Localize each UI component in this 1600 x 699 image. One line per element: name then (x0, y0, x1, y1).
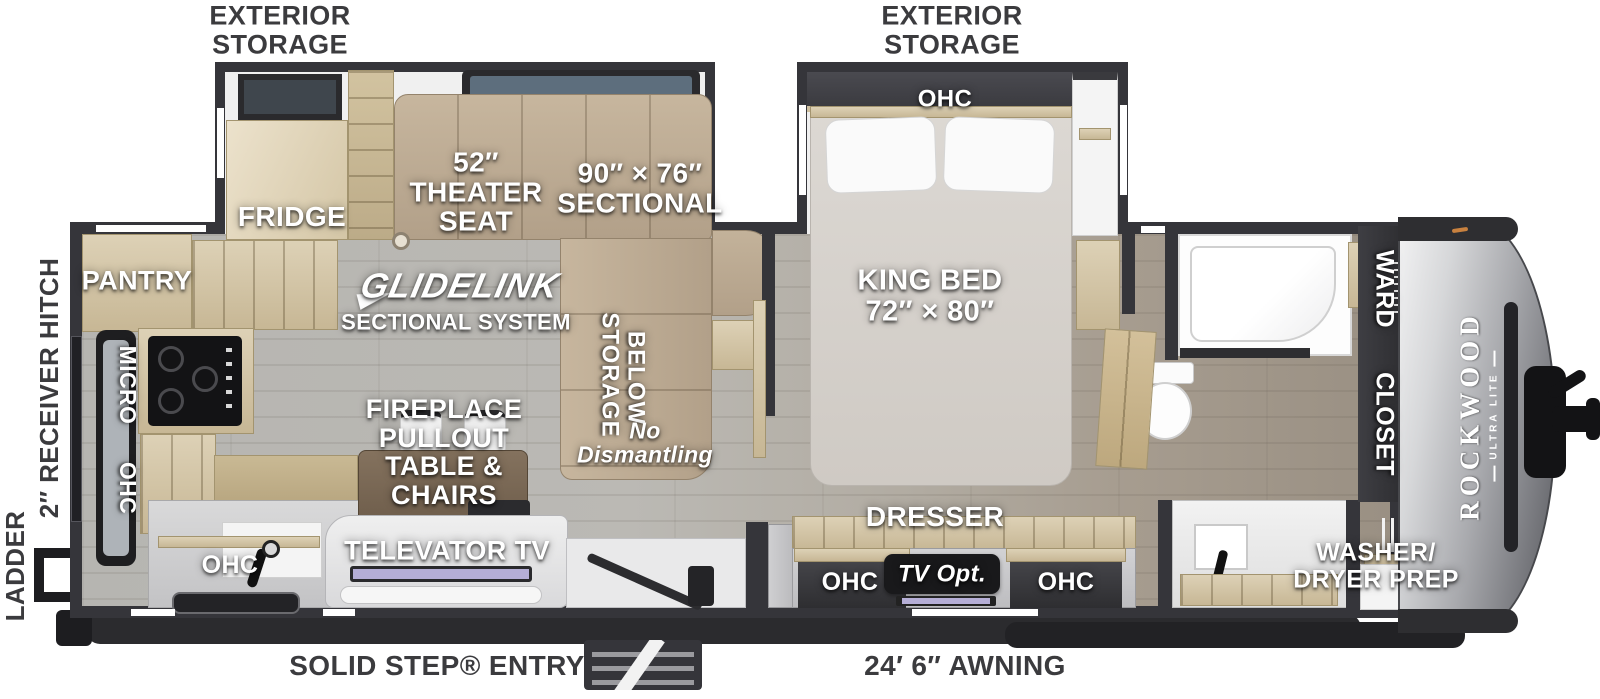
shower-wall-left (1165, 234, 1178, 360)
pantry-label: PANTRY (82, 267, 192, 296)
slide-window-slit (217, 108, 224, 178)
kitchen-sink (172, 592, 300, 614)
storage-below-label-2: BELOW (623, 331, 648, 425)
bathroom-door (1095, 328, 1156, 469)
exterior-storage-line: STORAGE (209, 30, 350, 59)
bedroom-wardrobe (1072, 72, 1118, 236)
cap-bottom-molding (1398, 609, 1518, 633)
brand-dash (1493, 350, 1495, 366)
entry-steps (584, 640, 702, 690)
theater-line: SEAT (410, 207, 543, 237)
floorplan-canvas: EXTERIOR STORAGE EXTERIOR STORAGE LADDER… (0, 0, 1600, 699)
receiver-hitch-label: 2″ RECEIVER HITCH (36, 258, 64, 519)
fridge-label: FRIDGE (238, 202, 346, 232)
exterior-storage-right-label: EXTERIOR STORAGE (881, 1, 1022, 58)
tv-base (340, 586, 542, 604)
sectional-label: 90″ × 76″ SECTIONAL (557, 158, 722, 217)
slide-window-slit (799, 105, 806, 195)
door-side-chair (688, 566, 714, 606)
fireplace-line: CHAIRS (366, 481, 523, 510)
fireplace-pullout-label: FIREPLACE PULLOUT TABLE & CHAIRS (366, 395, 523, 509)
exterior-storage-line: STORAGE (881, 30, 1022, 59)
fireplace-line: FIREPLACE (366, 395, 523, 424)
window-slit (323, 609, 355, 616)
slide-tall-cabinet (348, 70, 394, 240)
no-dismantling-line: No (577, 419, 713, 443)
dresser-ohc-right-shelf (1006, 548, 1126, 562)
ohc-sink-label: OHC (202, 552, 259, 579)
cap-window-strip (1504, 302, 1518, 552)
bedroom-wall-bottom (746, 522, 768, 618)
cooktop (148, 336, 242, 426)
shower-glass (1180, 348, 1310, 358)
bath-wall-left (1122, 234, 1135, 314)
window-slit (96, 225, 206, 232)
dresser-label: DRESSER (866, 502, 1004, 532)
washer-dryer-line: DRYER PREP (1293, 566, 1459, 593)
brand-ultra-lite-text: ULTRA LITE (1489, 372, 1500, 459)
washer-dryer-prep-label: WASHER/ DRYER PREP (1293, 540, 1459, 593)
bedroom-sliding-door (753, 300, 766, 458)
cupholder (392, 232, 410, 250)
window-slit (1141, 226, 1165, 233)
exterior-storage-line: EXTERIOR (209, 1, 350, 30)
ohc-bed-label: OHC (918, 86, 973, 111)
rear-window (71, 336, 82, 522)
sectional-line: SECTIONAL (557, 188, 722, 218)
glidelink-logo: GLIDELINK (357, 267, 562, 304)
theater-seat-label: 52″ THEATER SEAT (410, 147, 543, 236)
frame-rail-front (1005, 622, 1465, 648)
fireplace-line: TABLE & (366, 452, 523, 481)
slide-window-slit (1120, 105, 1127, 195)
brand-ultra-lite: ULTRA LITE (1489, 350, 1500, 481)
ohc-dresser-left-label: OHC (822, 569, 879, 596)
televator-tv-label: TELEVATOR TV (344, 537, 550, 566)
sectional-system-label: SECTIONAL SYSTEM (341, 310, 571, 333)
ladder-label: LADDER (2, 511, 30, 622)
brand-dash (1493, 466, 1495, 482)
shower-pan (1178, 234, 1352, 356)
micro-label: MICRO (116, 346, 140, 425)
brand-rockwood: ROCKWOOD (1456, 311, 1485, 521)
tv-opt-label: TV Opt. (898, 561, 986, 586)
fridge-window (238, 74, 342, 120)
entry-landing (566, 538, 746, 608)
ohc-shelf-plank (158, 536, 320, 548)
king-bed-line: KING BED (858, 265, 1003, 296)
exterior-storage-line: EXTERIOR (881, 1, 1022, 30)
ohc-kitchen-wall-label: OHC (116, 462, 140, 514)
ohc-dresser-right-label: OHC (1038, 569, 1095, 596)
theater-line: 52″ (410, 147, 543, 177)
closet-label: CLOSET (1371, 372, 1398, 476)
bed-pillow (943, 116, 1056, 194)
awning-label: 24′ 6″ AWNING (864, 651, 1066, 681)
tv-screen (350, 566, 532, 582)
exterior-storage-left-label: EXTERIOR STORAGE (209, 1, 350, 58)
washer-dryer-line: WASHER/ (1293, 540, 1459, 567)
theater-line: THEATER (410, 177, 543, 207)
ward-label: WARD (1371, 250, 1398, 328)
no-dismantling-label: No Dismantling (577, 419, 713, 468)
solid-step-entry-label: SOLID STEP® ENTRY (289, 651, 585, 681)
vanity-wall-left (1158, 500, 1172, 610)
king-bed-label: KING BED 72″ × 80″ (858, 265, 1003, 326)
hitch-coupler (1586, 398, 1600, 440)
step-tread (592, 680, 694, 685)
king-bed-line: 72″ × 80″ (858, 296, 1003, 327)
faucet-knob (262, 540, 280, 558)
fireplace-line: PULLOUT (366, 423, 523, 452)
kitchen-upper-cabinets (192, 240, 338, 330)
sectional-line: 90″ × 76″ (557, 158, 722, 188)
window-slit (131, 609, 175, 616)
window-slit (912, 609, 1038, 616)
no-dismantling-line: Dismantling (577, 443, 713, 467)
bedroom-tv (896, 596, 996, 606)
bedroom-nightstand (1076, 240, 1120, 330)
bed-pillow (825, 116, 938, 194)
